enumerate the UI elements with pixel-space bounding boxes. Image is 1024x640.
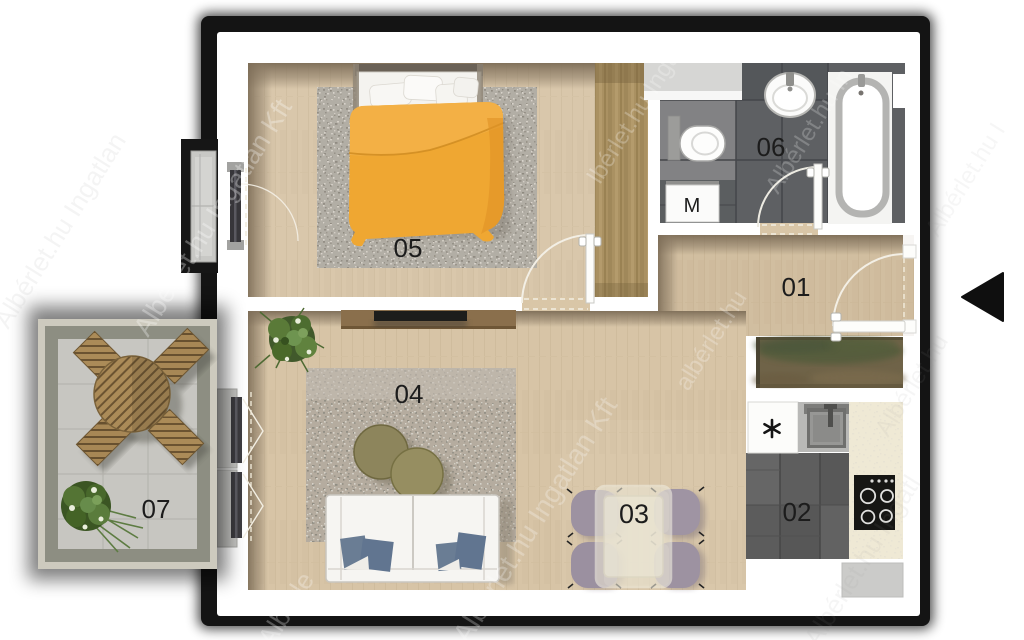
- svg-text:02: 02: [783, 497, 812, 527]
- svg-text:05: 05: [394, 233, 423, 263]
- svg-text:M: M: [684, 195, 701, 217]
- svg-text:07: 07: [142, 494, 171, 524]
- svg-text:04: 04: [395, 379, 424, 409]
- svg-text:03: 03: [619, 499, 649, 529]
- svg-text:01: 01: [782, 272, 811, 302]
